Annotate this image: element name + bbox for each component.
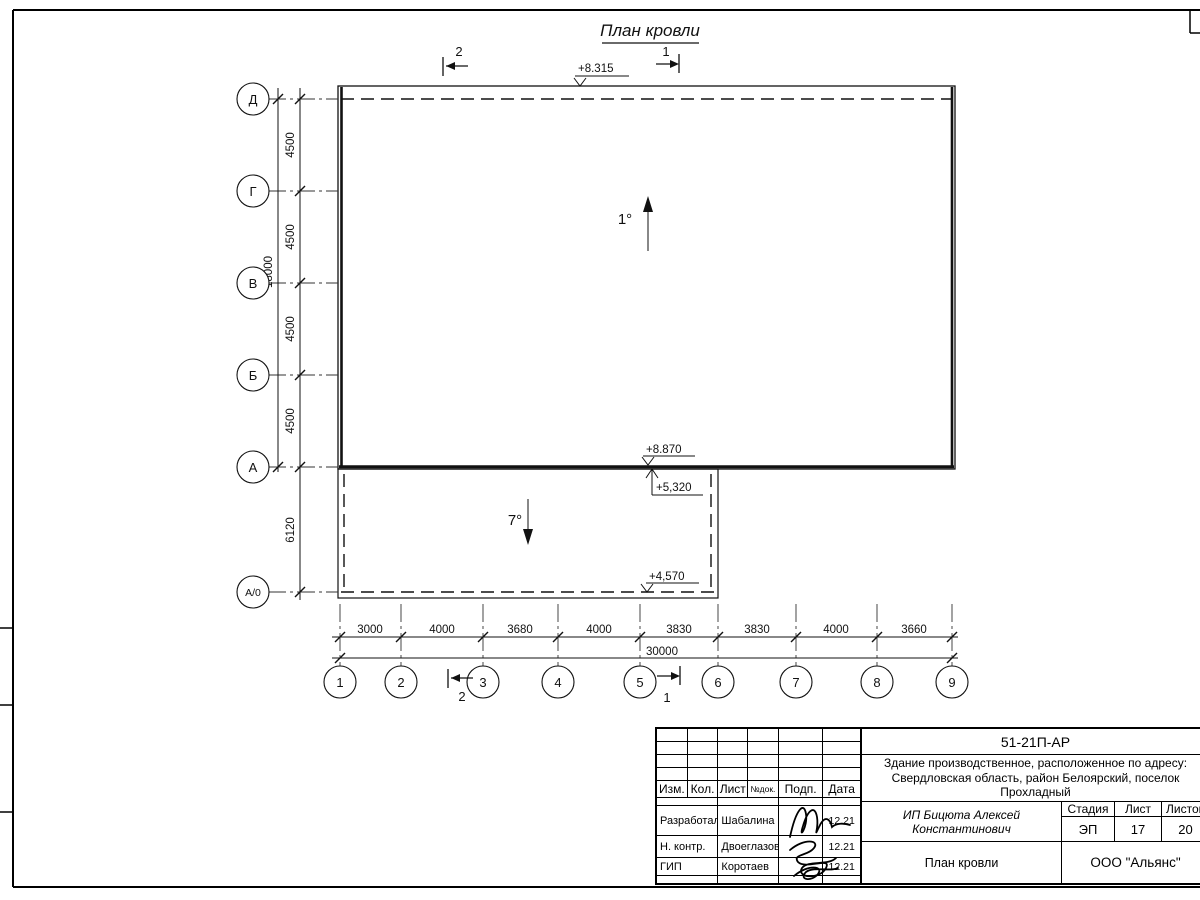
slope-arrow-annex: 7° xyxy=(508,499,533,545)
title-block: Изм. Кол. Лист №док. Подп. Дата Разработ… xyxy=(655,727,1200,885)
gip-name: Коротаев xyxy=(718,858,778,875)
arrow-down-icon xyxy=(523,529,533,545)
col-kol: Кол. xyxy=(688,781,719,797)
svg-text:3660: 3660 xyxy=(901,624,927,636)
row-gip: ГИП Коротаев 12.21 xyxy=(657,858,860,876)
arrow-right-icon xyxy=(671,672,680,680)
col-list: Лист xyxy=(718,781,748,797)
svg-text:4500: 4500 xyxy=(285,408,297,434)
bottom-dimension-labels: 3000 4000 3680 4000 3830 3830 4000 3660 … xyxy=(357,624,927,658)
stage-sheet-grid: Стадия Лист Листов ЭП 17 20 xyxy=(1062,802,1200,841)
revision-table-header: Изм. Кол. Лист №док. Подп. Дата xyxy=(657,781,860,798)
page-title: План кровли xyxy=(600,21,700,40)
svg-text:4000: 4000 xyxy=(823,624,849,636)
svg-text:5: 5 xyxy=(636,675,643,690)
svg-text:7: 7 xyxy=(792,675,799,690)
svg-text:9: 9 xyxy=(948,675,955,690)
svg-text:3830: 3830 xyxy=(744,624,770,636)
svg-text:+5,320: +5,320 xyxy=(656,482,692,494)
svg-text:3830: 3830 xyxy=(666,624,692,636)
svg-text:1: 1 xyxy=(663,690,670,705)
svg-text:8: 8 xyxy=(873,675,880,690)
svg-text:Б: Б xyxy=(249,368,258,383)
sheet-title: План кровли xyxy=(862,842,1062,883)
svg-text:1: 1 xyxy=(662,44,669,59)
elevation-mark-annex-top: +5,320 xyxy=(646,469,703,495)
col-ndok: №док. xyxy=(748,781,779,797)
svg-text:6120: 6120 xyxy=(285,517,297,543)
client-name: ИП Бицюта Алексей Константинович xyxy=(862,802,1062,841)
svg-text:3: 3 xyxy=(479,675,486,690)
col-podp: Подп. xyxy=(779,781,824,797)
title-block-revision-table: Изм. Кол. Лист №док. Подп. Дата Разработ… xyxy=(657,729,862,883)
stage-value: ЭП xyxy=(1062,817,1115,841)
sheets-value: 20 xyxy=(1162,817,1200,841)
elevation-mark-main-edge: +8.870 xyxy=(642,444,695,465)
developer-role: Разработал xyxy=(657,806,718,835)
drawing-sheet: { "drawing": { "title": "План кровли", "… xyxy=(0,0,1200,900)
svg-text:2: 2 xyxy=(455,44,462,59)
svg-text:2: 2 xyxy=(458,689,465,704)
project-name-line2: Свердловская область, район Белоярский, … xyxy=(892,771,1180,786)
svg-text:Д: Д xyxy=(249,92,258,107)
bottom-axis-bubbles xyxy=(324,666,968,698)
svg-text:В: В xyxy=(249,276,258,291)
corner-stamp-box xyxy=(1190,10,1200,33)
doc-number: 51-21П-АР xyxy=(862,729,1200,755)
svg-text:1°: 1° xyxy=(618,211,632,228)
svg-text:30000: 30000 xyxy=(646,646,678,658)
slope-arrow-main: 1° xyxy=(618,196,653,251)
arrow-left-icon xyxy=(451,674,460,682)
section-mark-2-top: 2 xyxy=(443,44,468,76)
svg-text:6: 6 xyxy=(714,675,721,690)
svg-text:4500: 4500 xyxy=(285,224,297,250)
dimension-ticks xyxy=(273,94,957,663)
developer-date: 12.21 xyxy=(823,806,860,835)
svg-text:7°: 7° xyxy=(508,512,522,529)
svg-text:А/0: А/0 xyxy=(245,587,261,599)
company-name: ООО "Альянс" xyxy=(1062,842,1200,883)
svg-text:4500: 4500 xyxy=(285,132,297,158)
title-block-main: 51-21П-АР Здание производственное, распо… xyxy=(862,729,1200,883)
svg-text:+8.870: +8.870 xyxy=(646,444,682,456)
sheet-value: 17 xyxy=(1115,817,1162,841)
developer-name: Шабалина xyxy=(718,806,778,835)
left-axis-bubbles xyxy=(237,83,269,608)
svg-text:Г: Г xyxy=(249,184,256,199)
section-mark-1-bottom: 1 xyxy=(657,666,680,705)
svg-text:4000: 4000 xyxy=(429,624,455,636)
dimension-lines xyxy=(278,88,958,658)
svg-text:3000: 3000 xyxy=(357,624,383,636)
normcontrol-name: Двоеглазов xyxy=(718,836,778,857)
gip-role: ГИП xyxy=(657,858,718,875)
project-name-line1: Здание производственное, расположенное п… xyxy=(884,756,1187,771)
row-developer: Разработал Шабалина 12.21 xyxy=(657,806,860,836)
col-data: Дата xyxy=(823,781,860,797)
svg-text:4500: 4500 xyxy=(285,316,297,342)
svg-text:+8.315: +8.315 xyxy=(578,63,614,75)
col-izm: Изм. xyxy=(657,781,688,797)
sheet-label: Лист xyxy=(1115,802,1162,816)
arrow-left-icon xyxy=(446,62,455,70)
elevation-mark-top: +8.315 xyxy=(574,63,629,86)
elevation-mark-annex-edge: +4,570 xyxy=(641,571,699,592)
left-axis-labels: Д Г В Б А А/0 xyxy=(245,92,261,599)
arrow-up-icon xyxy=(643,196,653,212)
binding-edge-marks xyxy=(0,628,13,812)
axis-grid-lines xyxy=(268,99,952,666)
svg-text:4000: 4000 xyxy=(586,624,612,636)
project-name-line3: Прохладный xyxy=(1000,785,1070,800)
arrow-right-icon xyxy=(670,60,679,68)
stage-label: Стадия xyxy=(1062,802,1115,816)
svg-text:+4,570: +4,570 xyxy=(649,571,685,583)
section-mark-1-top: 1 xyxy=(656,44,679,73)
svg-text:А: А xyxy=(249,460,258,475)
normcontrol-date: 12.21 xyxy=(823,836,860,857)
main-roof-outline xyxy=(338,86,955,469)
row-norm-control: Н. контр. Двоеглазов 12.21 xyxy=(657,836,860,858)
svg-text:3680: 3680 xyxy=(507,624,533,636)
sheets-label: Листов xyxy=(1162,802,1200,816)
project-name: Здание производственное, расположенное п… xyxy=(862,755,1200,802)
svg-text:4: 4 xyxy=(554,675,561,690)
svg-text:2: 2 xyxy=(397,675,404,690)
svg-text:1: 1 xyxy=(336,675,343,690)
gip-date: 12.21 xyxy=(823,858,860,875)
normcontrol-role: Н. контр. xyxy=(657,836,718,857)
